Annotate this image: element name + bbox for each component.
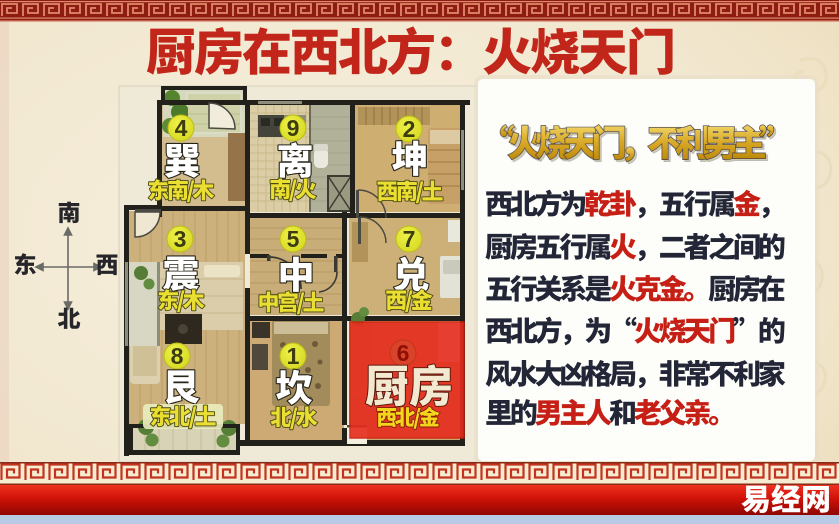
svg-text:7: 7: [403, 226, 416, 252]
svg-text:3: 3: [174, 226, 187, 252]
svg-text:5: 5: [287, 226, 300, 252]
svg-text:4: 4: [175, 115, 188, 141]
svg-text:9: 9: [287, 115, 300, 141]
svg-text:6: 6: [397, 340, 410, 366]
svg-text:2: 2: [403, 116, 416, 142]
svg-text:8: 8: [171, 343, 184, 369]
svg-text:1: 1: [287, 343, 300, 369]
